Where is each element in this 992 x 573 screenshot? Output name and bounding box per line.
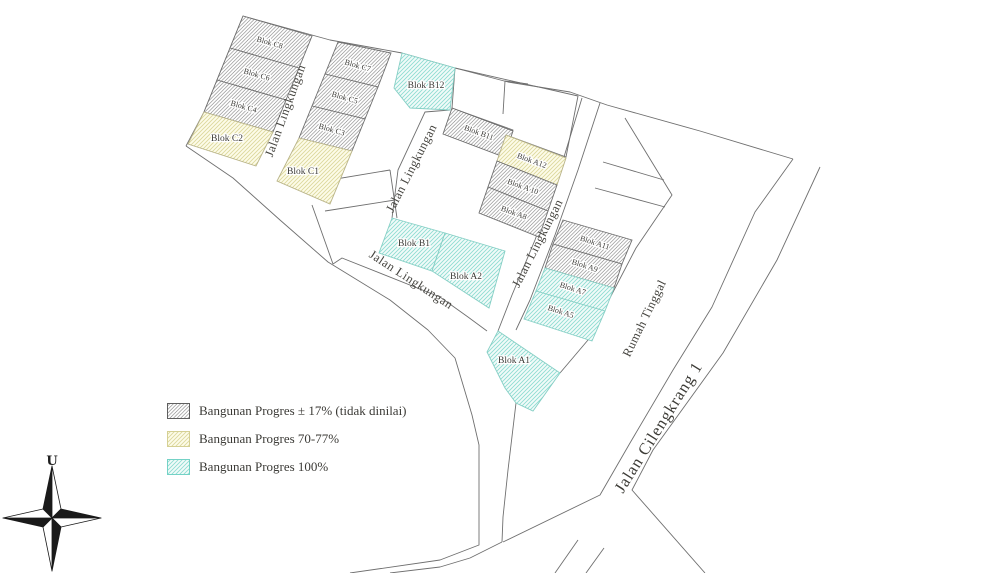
access-road-east-edge-line xyxy=(502,403,516,542)
legend-swatch-progress-100 xyxy=(167,459,190,475)
south-branch-west-edge-line xyxy=(555,540,578,573)
block-a1-label: Blok A1 xyxy=(498,356,530,366)
block-b1-label: Blok B1 xyxy=(398,239,430,249)
legend-swatch-progress-17 xyxy=(167,403,190,419)
legend-label-progress-17: Bangunan Progres ± 17% (tidak dinilai) xyxy=(199,403,407,419)
legend: Bangunan Progres ± 17% (tidak dinilai) B… xyxy=(167,402,407,486)
fan-divider-b xyxy=(595,188,665,207)
south-branch-east-edge-line xyxy=(586,548,604,573)
compass-star-icon xyxy=(3,466,101,571)
site-plan-map: Blok C8 Blok C6 Blok C4 Blok C2 Blok C7 … xyxy=(0,0,992,573)
road2-jalan-lingkungan-label: Jalan Lingkungan xyxy=(383,121,440,214)
legend-item-progress-17: Bangunan Progres ± 17% (tidak dinilai) xyxy=(167,402,407,419)
legend-item-progress-100: Bangunan Progres 100% xyxy=(167,458,407,475)
legend-label-progress-70-77: Bangunan Progres 70-77% xyxy=(199,431,339,447)
compass-rose: U xyxy=(0,448,110,573)
cilengkrang-east-edge-line xyxy=(632,167,820,573)
block-c1-label: Blok C1 xyxy=(287,167,319,177)
site-plan-page: { "map": { "blocks": [ {"id":"c8","label… xyxy=(0,0,992,573)
rumah-tinggal-area-label: Rumah Tinggal xyxy=(620,277,669,359)
jalan-cilengkrang-1-label: Jalan Cilengkrang 1 xyxy=(610,358,706,496)
block-a2-label: Blok A2 xyxy=(450,272,482,282)
block-b12-label: Blok B12 xyxy=(408,81,445,91)
road4-northeast-edge-line xyxy=(312,205,333,264)
block-c2-label: Blok C2 xyxy=(211,134,243,144)
fan-divider-a xyxy=(603,162,664,180)
top-notch-line xyxy=(503,81,528,114)
legend-label-progress-100: Bangunan Progres 100% xyxy=(199,459,328,475)
legend-item-progress-70-77: Bangunan Progres 70-77% xyxy=(167,430,407,447)
block-a1-polygon xyxy=(487,331,560,411)
legend-swatch-progress-70-77 xyxy=(167,431,190,447)
